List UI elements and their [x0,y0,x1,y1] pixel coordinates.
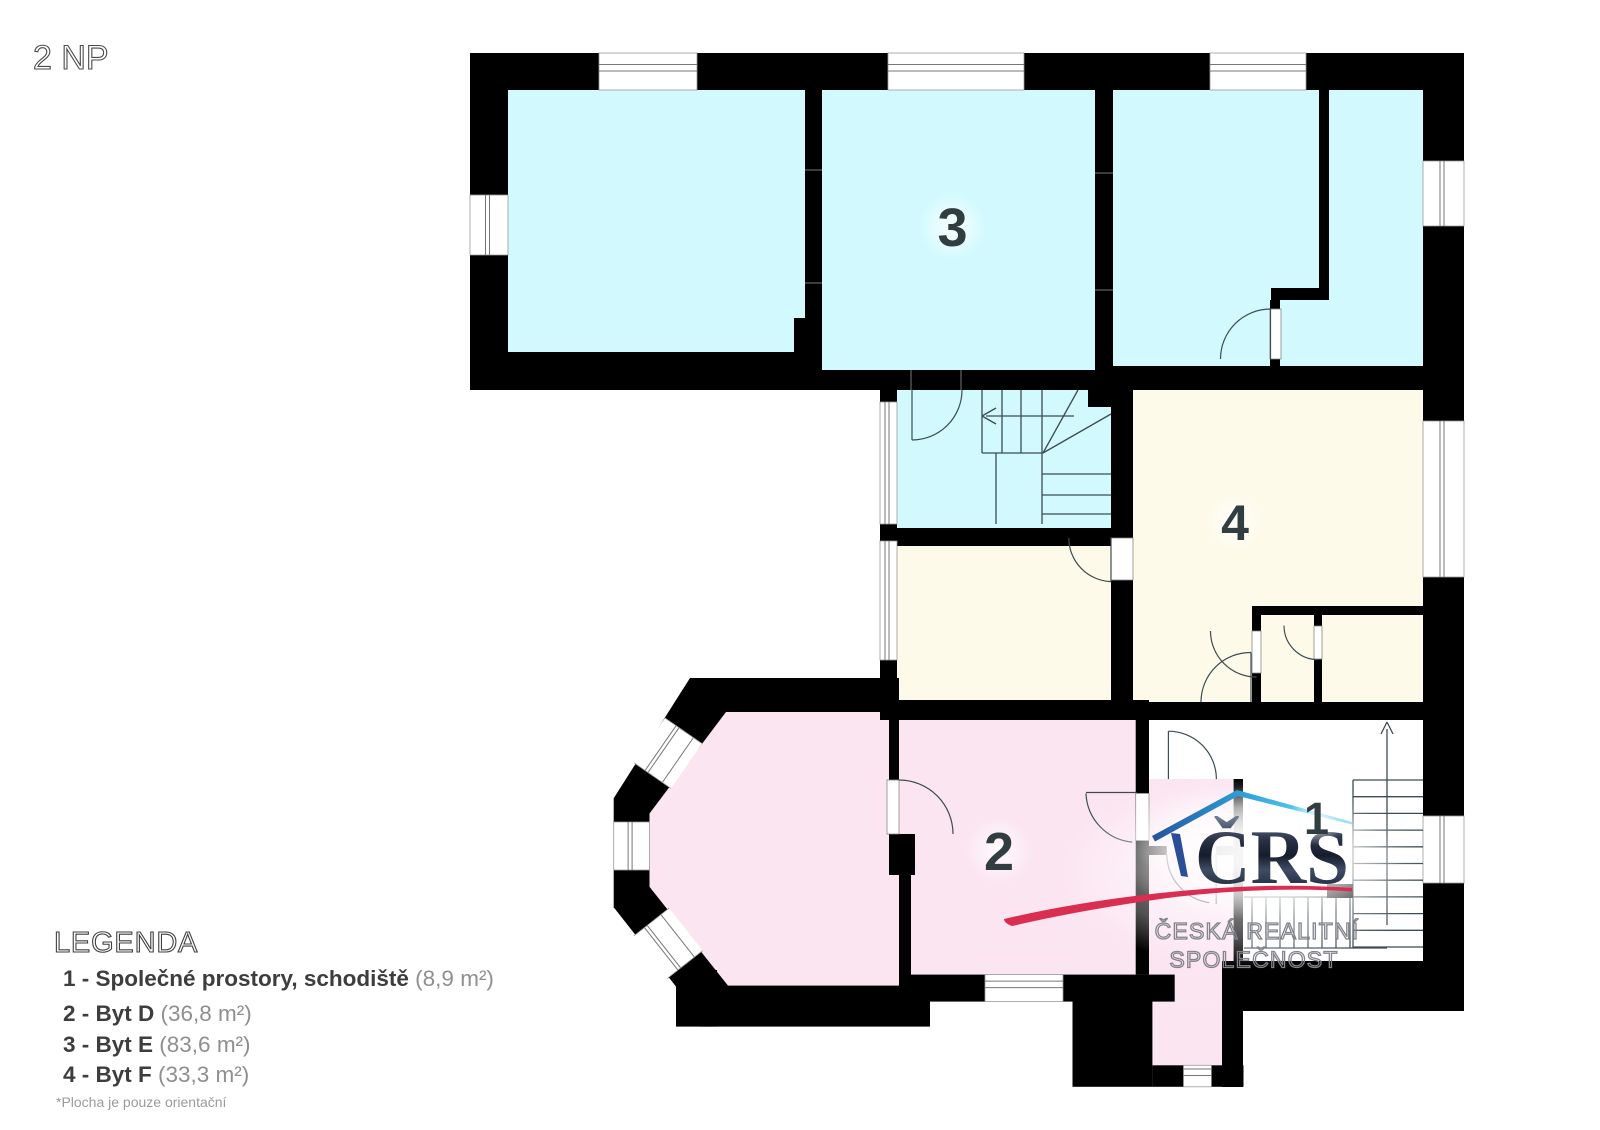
svg-text:2 NP: 2 NP [33,39,109,77]
svg-text:1: 1 [1304,793,1329,844]
svg-text:1 - Společné prostory, schodiš: 1 - Společné prostory, schodiště (8,9 m²… [63,966,494,991]
svg-text:2: 2 [984,822,1014,882]
svg-text:ČESKÁ REALITNÍ: ČESKÁ REALITNÍ [1155,917,1360,944]
svg-text:4 - Byt F (33,3 m²): 4 - Byt F (33,3 m²) [63,1062,249,1087]
svg-text:SPOLEČNOST: SPOLEČNOST [1169,946,1338,973]
svg-text:LEGENDA: LEGENDA [54,927,198,959]
svg-text:*Plocha je pouze orientační: *Plocha je pouze orientační [56,1094,227,1110]
svg-text:3: 3 [937,198,967,258]
svg-text:4: 4 [1221,495,1249,551]
svg-text:3 - Byt E (83,6 m²): 3 - Byt E (83,6 m²) [63,1032,251,1057]
svg-text:2 - Byt D (36,8 m²): 2 - Byt D (36,8 m²) [63,1001,252,1026]
